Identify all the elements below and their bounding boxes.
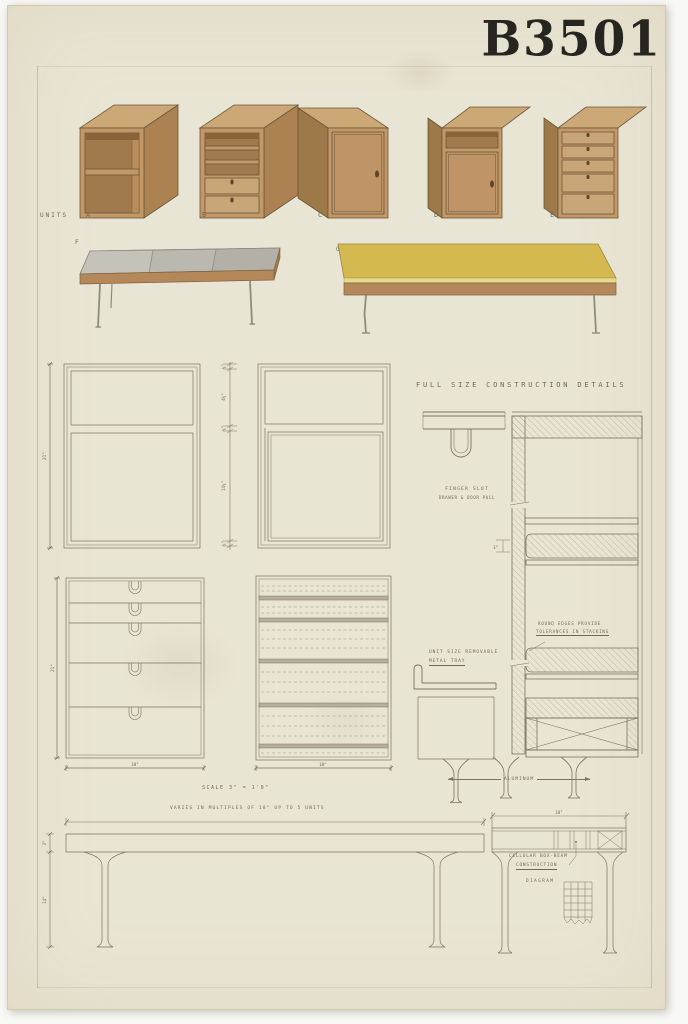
dim-chain-2: ⅝" — [221, 426, 226, 431]
dim-drawer-height: 21" — [50, 664, 56, 672]
round-edges-note-line1: ROUND EDGES PROVIDE — [538, 621, 601, 626]
rail-section-drawing: 18" — [246, 568, 401, 778]
unit-a-open-shelf-rendering — [72, 96, 190, 222]
dim-rail-width: 18" — [319, 762, 327, 767]
dim-one-inch: 1" — [493, 545, 498, 551]
bench-end-section-drawing: 18" — [480, 806, 655, 971]
stacking-section-detail: 1" — [492, 402, 660, 802]
elevation-door-unit — [248, 356, 398, 556]
dim-drawer-width: 18" — [131, 762, 139, 767]
dim-end-width: 18" — [555, 810, 563, 815]
round-edges-note-line2: TOLERANCES IN STACKING — [536, 629, 609, 636]
scale-note: SCALE 3" = 1'0" — [202, 785, 270, 791]
cellular-note-line2: CONSTRUCTION — [516, 863, 557, 870]
details-heading: FULL SIZE CONSTRUCTION DETAILS — [416, 381, 626, 390]
unit-label-a: A — [86, 211, 90, 220]
dim-unit-height: 21" — [42, 452, 48, 460]
drawer-unit-elevation: 21" 18" — [52, 568, 217, 778]
dimension-chain: ⅝" 4⅝" ⅝" 14⅝" ⅝" — [206, 356, 254, 556]
cellular-note-line1: CELLULAR BOX-BEAM — [509, 854, 568, 860]
varies-note: VARIES IN MULTIPLES OF 18" UP TO 5 UNITS — [170, 806, 325, 812]
bench-label-f: F — [75, 239, 79, 247]
units-caption: UNITS — [40, 212, 68, 220]
dim-chain-3: 14⅝" — [221, 481, 226, 491]
bench-label-g: G — [336, 246, 340, 254]
unit-e-drawers-rendering — [532, 96, 650, 222]
dim-slab-thickness: 3" — [42, 840, 47, 845]
dim-leg-height: 14" — [42, 896, 47, 904]
diagram-label: DIAGRAM — [526, 879, 554, 885]
unit-label-b: B — [202, 211, 206, 220]
unit-d-shelf-door-rendering — [416, 96, 534, 222]
bench-elevation-drawing: 3" 14" — [38, 814, 498, 964]
aluminum-label: ALUMINUM — [504, 777, 534, 782]
bench-g-rendering — [332, 236, 627, 341]
dim-chain-1: 4⅝" — [221, 393, 226, 401]
unit-label-c: C — [318, 211, 322, 220]
aluminum-dimension: ALUMINUM — [448, 777, 590, 782]
dim-chain-0: ⅝" — [221, 364, 226, 369]
unit-label-d: D — [434, 211, 438, 220]
scanned-drawing-sheet: B3501 — [0, 0, 688, 1024]
unit-c-sliding-door-rendering — [288, 96, 406, 222]
bench-f-rendering — [52, 238, 297, 333]
unit-label-e: E — [550, 211, 554, 220]
border-bottom — [37, 987, 652, 988]
arrow-left-icon — [448, 779, 501, 780]
drawing-number: B3501 — [481, 15, 662, 64]
arrow-right-icon — [537, 779, 590, 780]
elevation-open-unit: 21" — [40, 356, 205, 556]
dim-chain-4: ⅝" — [221, 541, 226, 546]
